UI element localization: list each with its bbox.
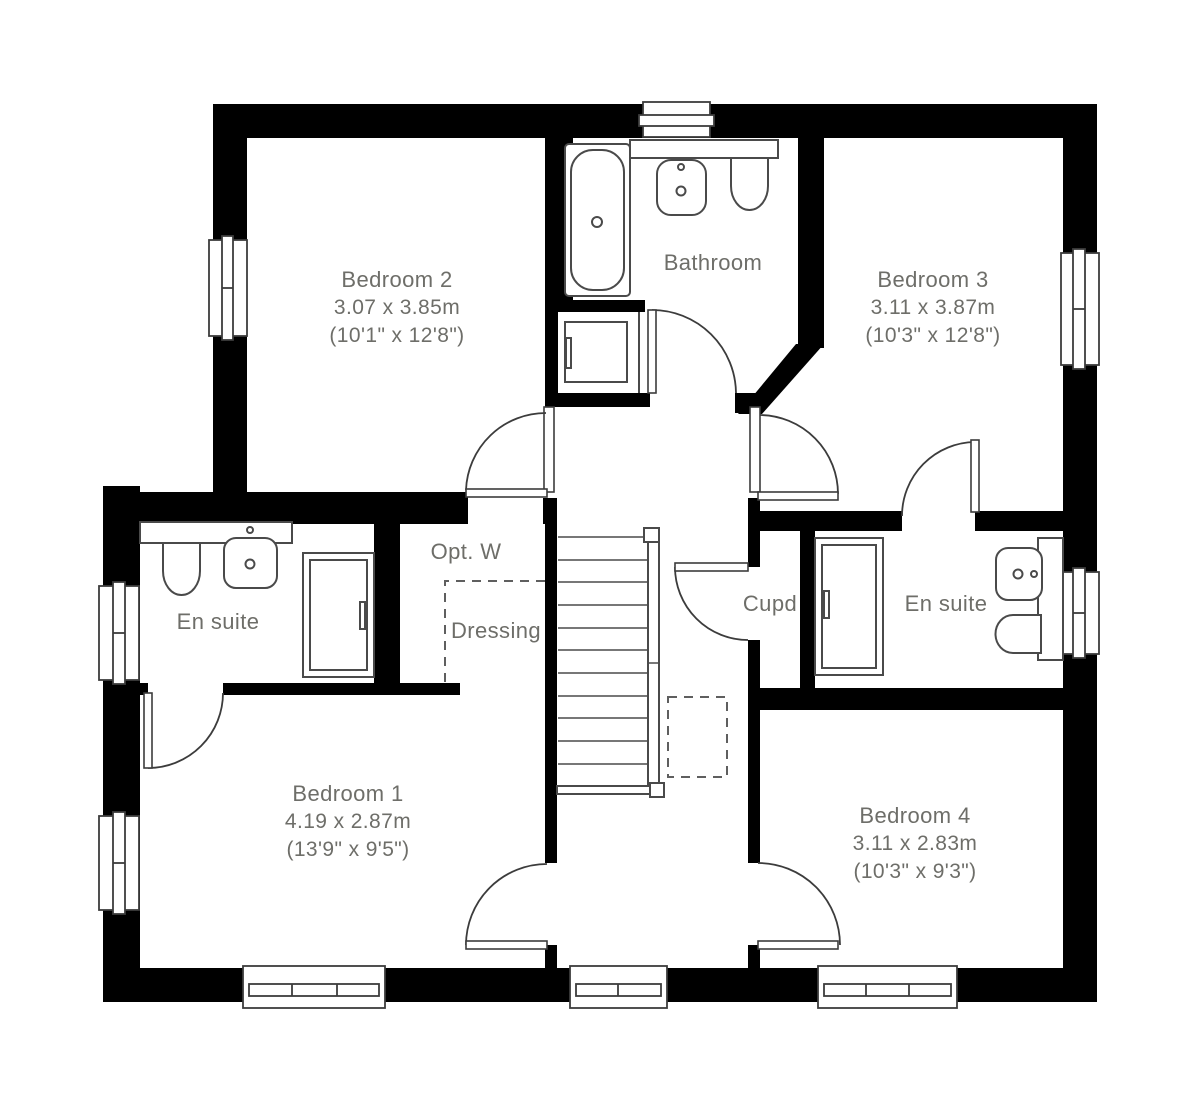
room-label-ensuite-left: En suite <box>177 608 260 636</box>
window <box>1061 249 1099 369</box>
door-swing <box>675 563 748 640</box>
sink <box>996 548 1042 600</box>
room-name: En suite <box>905 590 988 618</box>
dashed-outlines <box>445 581 727 777</box>
door-swing <box>758 415 838 500</box>
door-swing <box>902 440 979 516</box>
window <box>99 812 139 914</box>
room-name: Bedroom 3 <box>865 266 1000 294</box>
door-swing <box>758 863 840 949</box>
room-label-opt-w: Opt. W <box>431 538 502 566</box>
airing-cupboard <box>565 322 627 382</box>
sink <box>657 160 706 215</box>
window <box>1061 568 1099 658</box>
room-name: En suite <box>177 608 260 636</box>
room-label-dressing: Dressing <box>451 617 541 645</box>
newel-post <box>650 783 664 797</box>
room-label-bathroom: Bathroom <box>664 249 763 277</box>
room-name: Bedroom 1 <box>285 780 411 808</box>
vanity-counter <box>630 140 778 158</box>
door-swing <box>466 413 547 497</box>
room-label-bedroom2: Bedroom 2 3.07 x 3.85m (10'1" x 12'8") <box>329 266 464 350</box>
stairs <box>557 528 664 797</box>
room-size-metric: 3.07 x 3.85m <box>329 294 464 322</box>
room-name: Bedroom 2 <box>329 266 464 294</box>
room-name: Bathroom <box>664 249 763 277</box>
window <box>209 236 247 340</box>
window <box>243 966 385 1008</box>
shower <box>303 553 374 677</box>
storage-outline <box>668 697 727 777</box>
room-size-metric: 3.11 x 2.83m <box>853 830 978 858</box>
room-size-imperial: (10'3" x 12'8") <box>865 322 1000 350</box>
door-swing <box>648 310 736 393</box>
window <box>818 966 957 1008</box>
window <box>570 966 667 1008</box>
window <box>99 582 139 684</box>
door-swing <box>144 693 223 768</box>
room-label-bedroom1: Bedroom 1 4.19 x 2.87m (13'9" x 9'5") <box>285 780 411 864</box>
floor-plan: Bedroom 2 3.07 x 3.85m (10'1" x 12'8") B… <box>0 0 1200 1112</box>
toilet <box>731 158 768 210</box>
room-label-bedroom3: Bedroom 3 3.11 x 3.87m (10'3" x 12'8") <box>865 266 1000 350</box>
toilet <box>996 615 1042 653</box>
room-size-imperial: (10'3" x 9'3") <box>853 858 978 886</box>
shower <box>815 538 883 675</box>
room-size-imperial: (13'9" x 9'5") <box>285 836 411 864</box>
room-label-bedroom4: Bedroom 4 3.11 x 2.83m (10'3" x 9'3") <box>853 802 978 886</box>
room-label-cupd: Cupd <box>743 590 797 618</box>
door-swing <box>466 864 547 949</box>
room-name: Opt. W <box>431 538 502 566</box>
bathtub <box>565 144 630 296</box>
newel-post <box>644 528 659 542</box>
window <box>639 102 714 137</box>
room-name: Dressing <box>451 617 541 645</box>
room-label-ensuite-right: En suite <box>905 590 988 618</box>
ensuite-left-fixtures <box>140 522 374 677</box>
room-name: Cupd <box>743 590 797 618</box>
toilet <box>163 543 200 595</box>
room-size-metric: 4.19 x 2.87m <box>285 808 411 836</box>
room-name: Bedroom 4 <box>853 802 978 830</box>
floor-plan-drawing <box>0 0 1200 1112</box>
room-size-metric: 3.11 x 3.87m <box>865 294 1000 322</box>
room-size-imperial: (10'1" x 12'8") <box>329 322 464 350</box>
